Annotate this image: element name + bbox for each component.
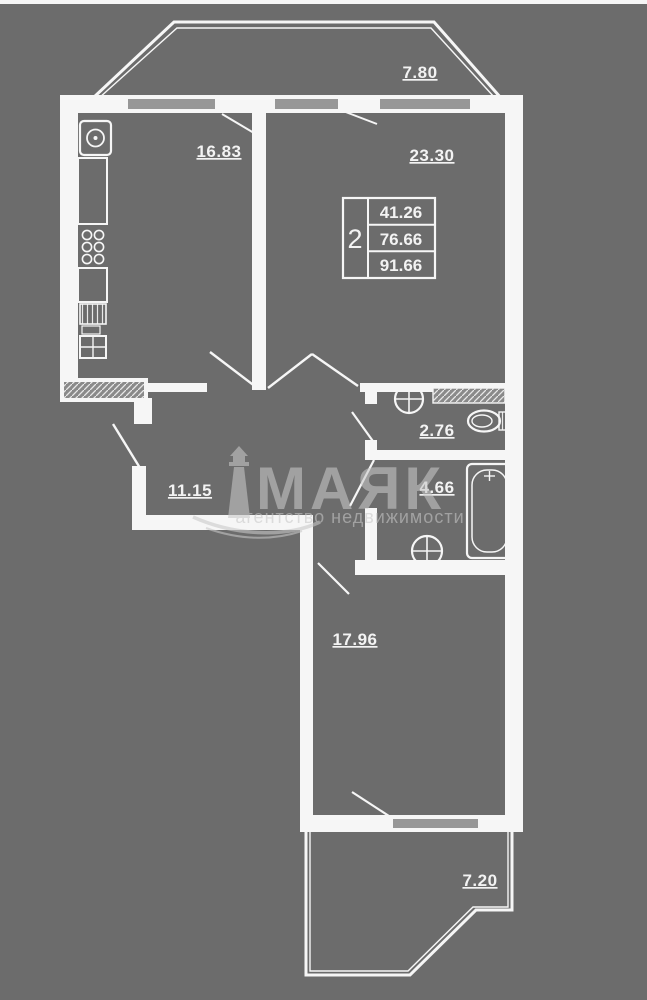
bathroom-sink-icon xyxy=(412,536,442,566)
stamp-area-no-balcony: 76.66 xyxy=(380,230,423,249)
balcony-bottom-railing-outer xyxy=(306,832,512,975)
wall-bath-bottom xyxy=(355,560,523,575)
bottom-balcony-door-swing xyxy=(352,792,392,818)
kitchen-counter-lower xyxy=(78,268,107,302)
floorplan-drawing: 7.80 xyxy=(0,0,647,1000)
wall-wc-left-stub xyxy=(365,388,377,404)
door-swings xyxy=(113,352,392,818)
toilet-icon xyxy=(468,411,507,432)
living-room-window-right xyxy=(380,99,470,109)
wall-hall-top-left xyxy=(140,383,207,392)
wall-bedroom-left xyxy=(300,515,313,832)
kitchen-door-swing xyxy=(210,352,256,387)
wall-left xyxy=(60,95,78,402)
kitchen-small-fixture xyxy=(82,326,100,334)
wc-fixtures: 2.76 xyxy=(395,385,507,440)
balcony-bottom: 7.20 xyxy=(306,832,512,975)
washing-machine-dot-icon xyxy=(94,136,98,140)
kitchen-area-label: 16.83 xyxy=(196,142,241,161)
balcony-top-railing-outer xyxy=(93,22,501,98)
kitchen-window xyxy=(128,99,215,109)
balcony-top-area-label: 7.80 xyxy=(402,63,437,82)
bedroom-window xyxy=(393,819,478,828)
wall-entry-stub xyxy=(134,398,152,424)
apartment-info-stamp: 2 41.26 76.66 91.66 xyxy=(343,198,435,278)
kitchen-fixtures xyxy=(78,121,111,358)
kitchen-sink-icon xyxy=(80,336,106,358)
wall-kitchen-living-partition xyxy=(252,95,266,390)
bedroom-area-label: 17.96 xyxy=(332,630,377,649)
living-room-area-label: 23.30 xyxy=(409,146,454,165)
stamp-rooms-count: 2 xyxy=(347,224,362,254)
vent-shaft-hatch xyxy=(433,388,505,403)
windows-top xyxy=(128,99,470,133)
kitchen-counter-upper xyxy=(78,158,107,224)
kitchen-balcony-door-swing xyxy=(222,114,254,133)
living-door-swing-right xyxy=(312,354,358,386)
stove-icon xyxy=(82,230,103,263)
wc-sink-icon xyxy=(395,385,423,413)
living-room-window-left xyxy=(275,99,338,109)
balcony-bottom-railing-inner xyxy=(310,832,508,971)
scan-border-top xyxy=(0,0,647,4)
floorplan-screenshot: 7.80 xyxy=(0,0,647,1000)
living-door-swing-left xyxy=(268,354,312,388)
stamp-living-area: 41.26 xyxy=(380,203,423,222)
dish-drainer-icon xyxy=(80,304,106,324)
entrance-door-swing xyxy=(113,424,140,468)
balcony-top: 7.80 xyxy=(93,22,501,98)
balcony-bottom-area-label: 7.20 xyxy=(462,871,497,890)
bedroom-door-swing xyxy=(318,563,349,594)
wc-area-label: 2.76 xyxy=(419,421,454,440)
kitchen-shaft-hatch xyxy=(64,382,144,398)
stamp-total-area: 91.66 xyxy=(380,256,423,275)
hallway-area-label: 11.15 xyxy=(168,481,212,500)
watermark-tagline: агентство недвижимости xyxy=(235,507,464,527)
wc-door-swing xyxy=(352,412,375,444)
